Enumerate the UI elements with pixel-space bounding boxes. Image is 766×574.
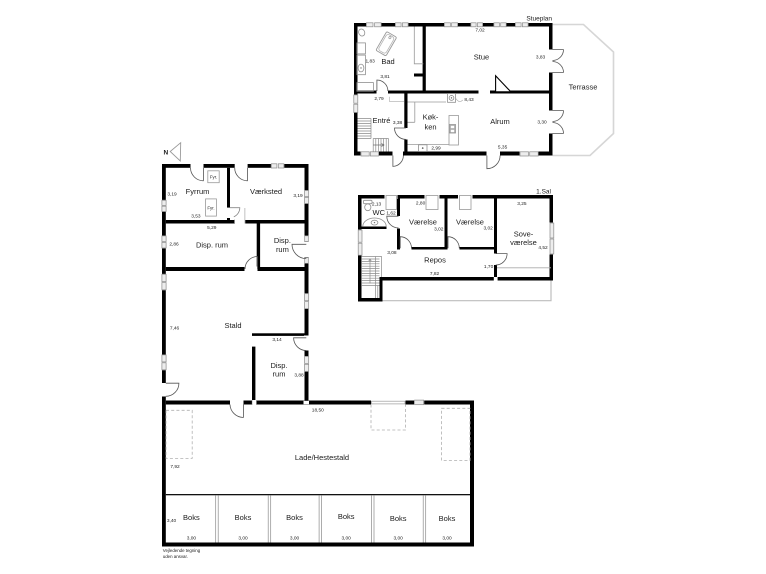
svg-text:WC: WC [373, 208, 386, 217]
svg-text:3,30: 3,30 [537, 119, 547, 125]
svg-text:Entré: Entré [373, 116, 391, 125]
svg-text:værelse: værelse [510, 238, 537, 247]
svg-text:3,08: 3,08 [387, 250, 397, 256]
svg-text:Bad: Bad [381, 57, 394, 66]
svg-text:Boks: Boks [439, 514, 456, 523]
svg-text:ken: ken [424, 123, 436, 132]
svg-text:1,83: 1,83 [366, 58, 376, 64]
svg-text:2,99: 2,99 [431, 145, 441, 151]
svg-text:3,81: 3,81 [380, 74, 390, 80]
svg-text:18,50: 18,50 [312, 408, 324, 414]
svg-text:Boks: Boks [390, 514, 407, 523]
svg-text:Fyr.: Fyr. [207, 205, 214, 210]
svg-text:Fyrrum: Fyrrum [186, 187, 210, 196]
svg-text:5,35: 5,35 [498, 144, 508, 150]
svg-text:3,02: 3,02 [484, 225, 494, 231]
svg-text:Stald: Stald [224, 321, 241, 330]
svg-text:uden ansvar.: uden ansvar. [163, 554, 188, 559]
svg-text:7,82: 7,82 [430, 271, 440, 277]
svg-text:7,92: 7,92 [170, 464, 180, 470]
svg-text:Vejledende tegning: Vejledende tegning [163, 548, 201, 553]
svg-text:Stueplan: Stueplan [526, 16, 552, 23]
svg-text:2,79: 2,79 [374, 96, 384, 102]
svg-text:Fyr.: Fyr. [210, 175, 217, 180]
svg-text:Værelse: Værelse [409, 217, 437, 226]
svg-text:rum: rum [273, 370, 286, 379]
svg-text:3,00: 3,00 [187, 536, 197, 542]
svg-text:rum: rum [276, 245, 289, 254]
svg-text:4,52: 4,52 [538, 245, 548, 251]
svg-text:Stue: Stue [474, 53, 489, 62]
svg-text:3,40: 3,40 [167, 518, 177, 524]
svg-text:3,00: 3,00 [290, 536, 300, 542]
svg-text:8,43: 8,43 [464, 97, 474, 103]
svg-text:3,38: 3,38 [393, 120, 403, 126]
svg-text:3,00: 3,00 [238, 536, 248, 542]
svg-text:Alrum: Alrum [490, 117, 510, 126]
svg-text:Terrasse: Terrasse [569, 83, 598, 92]
svg-text:Boks: Boks [235, 513, 252, 522]
svg-text:7,46: 7,46 [170, 325, 180, 331]
svg-text:2,86: 2,86 [169, 242, 179, 248]
svg-text:5,29: 5,29 [207, 225, 217, 231]
svg-text:Boks: Boks [183, 513, 200, 522]
svg-text:Værksted: Værksted [250, 187, 282, 196]
svg-text:Repos: Repos [424, 256, 446, 265]
svg-text:3,00: 3,00 [442, 536, 452, 542]
svg-text:3,00: 3,00 [342, 536, 352, 542]
svg-text:Værelse: Værelse [456, 218, 484, 227]
svg-text:1.Sal: 1.Sal [536, 189, 551, 196]
svg-text:2,80: 2,80 [416, 200, 426, 206]
svg-text:2,13: 2,13 [372, 201, 382, 207]
svg-text:Lade/Hestestald: Lade/Hestestald [295, 453, 349, 462]
svg-text:Disp.: Disp. [274, 236, 291, 245]
svg-text:1,62: 1,62 [386, 210, 396, 216]
svg-text:3,88: 3,88 [294, 372, 304, 378]
svg-text:Boks: Boks [338, 512, 355, 521]
svg-text:3,19: 3,19 [293, 193, 303, 199]
svg-text:3,00: 3,00 [394, 536, 404, 542]
svg-text:N: N [163, 150, 168, 157]
svg-text:Boks: Boks [286, 513, 303, 522]
svg-text:7,02: 7,02 [475, 28, 485, 34]
svg-text:Køk-: Køk- [423, 113, 439, 122]
svg-text:3,83: 3,83 [536, 54, 546, 60]
svg-text:1,70: 1,70 [484, 264, 494, 270]
svg-text:3,53: 3,53 [191, 214, 201, 220]
svg-text:3,02: 3,02 [434, 226, 444, 232]
svg-text:3,14: 3,14 [272, 337, 282, 343]
svg-text:3,19: 3,19 [167, 191, 177, 197]
svg-text:Disp. rum: Disp. rum [196, 241, 228, 250]
svg-text:3,25: 3,25 [517, 201, 527, 207]
